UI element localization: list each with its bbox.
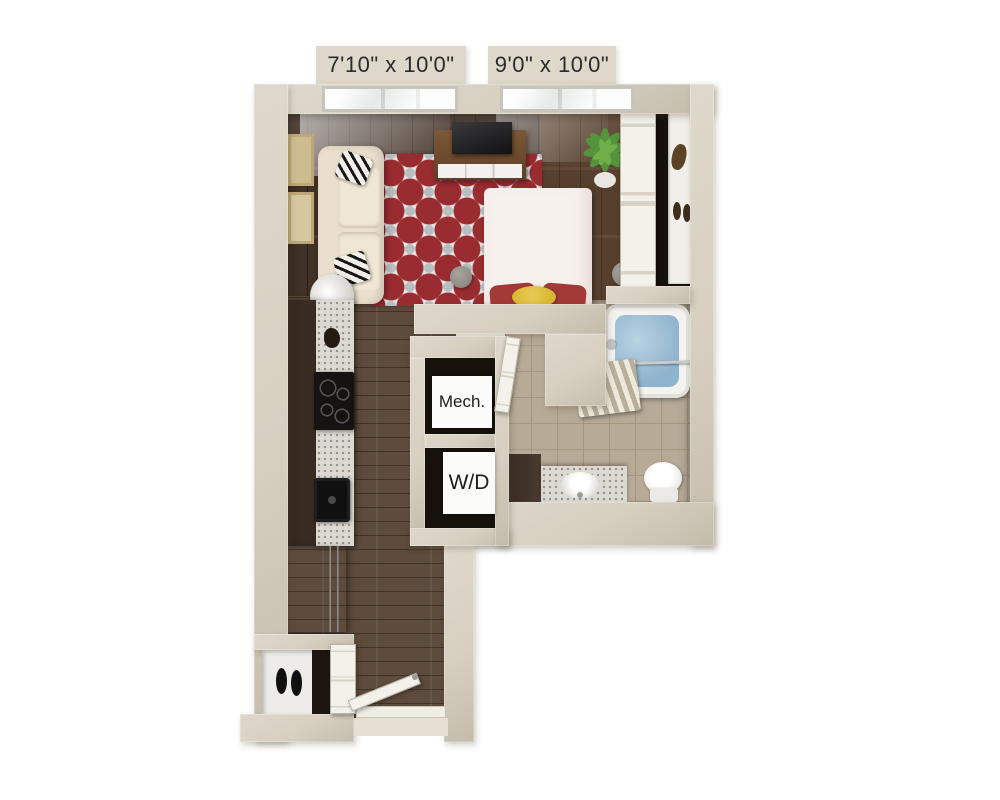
- sink-drain: [328, 496, 336, 504]
- wd-label: W/D: [449, 471, 490, 495]
- floor-plan: 7'10" x 10'0" 9'0" x 10'0": [0, 0, 1000, 800]
- dimension-label-bedroom: 9'0" x 10'0": [488, 46, 616, 84]
- wall: [606, 286, 690, 304]
- door-sill: [356, 706, 446, 718]
- dimension-label-living-text: 7'10" x 10'0": [327, 52, 454, 78]
- mech-label: Mech.: [439, 392, 485, 412]
- washer-dryer-unit: W/D: [443, 452, 495, 514]
- entry-closet-rod: [312, 650, 330, 714]
- toilet-tank: [650, 488, 678, 502]
- mech-unit: Mech.: [432, 376, 492, 428]
- shower-wall: [545, 334, 606, 406]
- nightstand-stool: [450, 266, 472, 288]
- window-living: [322, 86, 458, 112]
- tub-faucet: [607, 340, 616, 349]
- wall: [410, 358, 425, 546]
- wall: [240, 714, 354, 742]
- vanity-cabinet: [505, 454, 541, 502]
- entry-shoe: [276, 668, 287, 694]
- dimension-label-bedroom-text: 9'0" x 10'0": [495, 52, 609, 78]
- picture-frame: [288, 192, 314, 244]
- sink-faucet: [577, 492, 583, 498]
- wall: [444, 546, 474, 742]
- window-bedroom: [500, 86, 634, 112]
- tv-stand-drawers: [438, 164, 522, 178]
- entry-door-handle: [412, 674, 418, 680]
- closet-shelf: [668, 97, 690, 284]
- counter-decor-plant: [324, 328, 340, 348]
- tv: [452, 122, 512, 154]
- entry-threshold: [354, 718, 448, 736]
- closet-shoe: [673, 202, 681, 220]
- wall: [690, 84, 714, 546]
- cooktop: [314, 372, 354, 430]
- wall: [414, 304, 606, 334]
- dimension-label-living: 7'10" x 10'0": [316, 46, 466, 84]
- entry-shoe: [291, 670, 302, 696]
- wall: [425, 434, 495, 448]
- picture-frame: [288, 134, 314, 186]
- closet-sliding-doors: [620, 108, 656, 290]
